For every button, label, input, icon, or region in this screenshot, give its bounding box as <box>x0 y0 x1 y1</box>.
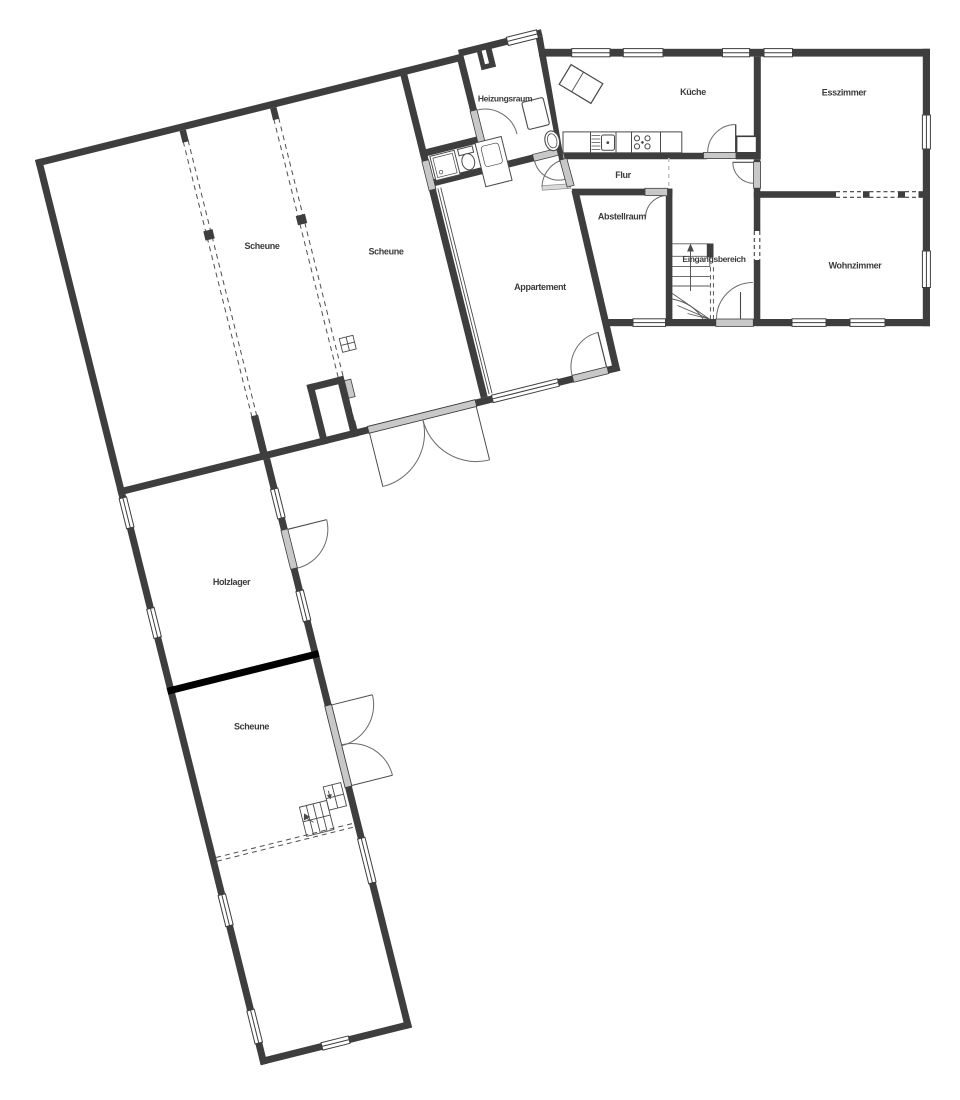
svg-text:Scheune: Scheune <box>234 722 269 732</box>
svg-text:Scheune: Scheune <box>244 241 279 251</box>
svg-text:Flur: Flur <box>615 170 631 180</box>
svg-text:Holzlager: Holzlager <box>213 577 251 587</box>
svg-text:Küche: Küche <box>680 87 706 97</box>
svg-text:Appartement: Appartement <box>514 282 566 292</box>
svg-text:Eingangsbereich: Eingangsbereich <box>682 254 745 264</box>
svg-text:Heizungsraum: Heizungsraum <box>478 94 533 104</box>
svg-text:Abstellraum: Abstellraum <box>598 212 647 222</box>
svg-text:Scheune: Scheune <box>368 247 403 257</box>
svg-text:Esszimmer: Esszimmer <box>822 88 867 98</box>
svg-text:Wohnzimmer: Wohnzimmer <box>829 261 883 271</box>
